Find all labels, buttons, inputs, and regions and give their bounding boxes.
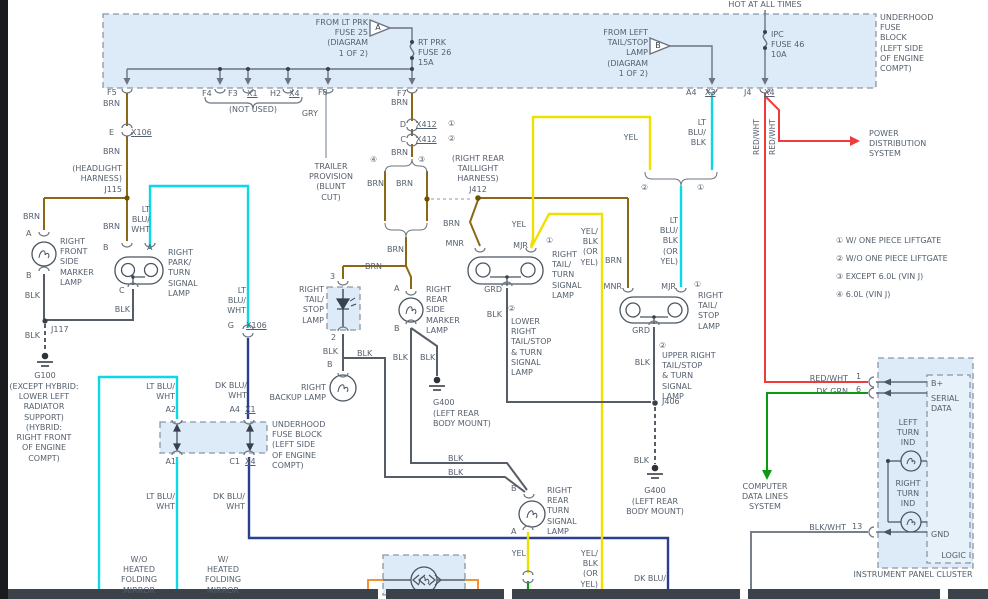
connector-label-x1: X1 xyxy=(247,89,261,99)
ipc-logic-label: LOGIC xyxy=(928,551,966,561)
wire-label-brn: BRN xyxy=(352,179,384,189)
wire-label-blk: BLK xyxy=(470,310,502,320)
page-left-border xyxy=(0,0,8,599)
wire-label-blk: BLK xyxy=(376,353,408,363)
wire-label-brn: BRN xyxy=(372,245,404,255)
note-ref-2: ② xyxy=(641,183,653,193)
underhood-fuse-block2-label: UNDERHOOD FUSE BLOCK (LEFT SIDE OF ENGIN… xyxy=(272,420,334,471)
wire-label-brn: BRN xyxy=(350,262,382,272)
not-used-label: (NOT USED) xyxy=(222,105,284,115)
connector-label-x4: X4 xyxy=(245,457,259,467)
note-1: ① W/ ONE PIECE LIFTGATE xyxy=(836,236,982,246)
ipc-serial-data-label: SERIAL DATA xyxy=(931,394,967,414)
pin-label-mnr: MNR xyxy=(592,282,622,292)
g100-ground xyxy=(37,353,53,366)
rear-turn-lamp-label: RIGHT REAR TURN SIGNAL LAMP xyxy=(547,486,603,537)
instrument-panel-cluster-label: INSTRUMENT PANEL CLUSTER xyxy=(838,570,988,580)
g400-note-label: (LEFT REAR BODY MOUNT) xyxy=(433,409,497,429)
pin-label-1: 1 xyxy=(856,372,866,382)
tail-stop-lamp-label: RIGHT TAIL/ STOP LAMP xyxy=(698,291,744,332)
computer-data-lines-label: COMPUTER DATA LINES SYSTEM xyxy=(736,482,794,513)
hot-at-all-times-label: HOT AT ALL TIMES xyxy=(705,0,825,10)
j412-harness-label: (RIGHT REAR TAILLIGHT HARNESS) J412 xyxy=(440,154,516,195)
pin-label-f8: F8 xyxy=(318,88,332,98)
g400-note-label: (LEFT REAR BODY MOUNT) xyxy=(616,497,694,517)
wire-label-brn: BRN xyxy=(88,147,120,157)
connector-label-x4: X4 xyxy=(289,89,303,99)
wire-label-blk: BLK xyxy=(618,358,650,368)
ipc-fuse-label: IPC FUSE 46 10A xyxy=(771,30,815,61)
pin-label-a: A xyxy=(394,284,404,294)
pin-label-f5: F5 xyxy=(107,88,123,98)
underhood-fuse-block-box xyxy=(103,14,876,88)
pin-label-mnr: MNR xyxy=(434,239,464,249)
pin-label-mjr: MJR xyxy=(498,241,528,251)
pin-label-a1: A1 xyxy=(158,457,176,467)
connector-label-x106: X106 xyxy=(246,321,272,331)
note-ref-2: ② xyxy=(508,304,520,314)
pin-label-6: 6 xyxy=(856,385,866,395)
g400-ground-1 xyxy=(429,377,445,390)
note-ref-2: ② xyxy=(659,341,671,351)
right-tail-stop-led-label: RIGHT TAIL/ STOP LAMP xyxy=(284,285,324,326)
pin-label-a4: A4 xyxy=(224,405,240,415)
pin-label-a: A xyxy=(26,229,36,239)
pin-label-b: B xyxy=(394,324,404,334)
pin-label-f3: F3 xyxy=(228,89,242,99)
wire-label-yel: YEL xyxy=(496,549,526,559)
j115-splice xyxy=(124,195,129,200)
pin-label-g: G xyxy=(222,321,234,331)
pin-label-a2: A2 xyxy=(158,405,176,415)
wire-label-dk-blu: DK BLU/ xyxy=(626,574,666,584)
pin-label-d: D xyxy=(396,120,406,130)
wire-label-red-wht-rotated: RED/WHT xyxy=(752,119,762,155)
from-left-tail-label: FROM LEFT TAIL/STOP LAMP (DIAGRAM 1 OF 2… xyxy=(588,28,648,79)
wiring-diagram-page: HOT AT ALL TIMES FROM LT PRK FUSE 25 (DI… xyxy=(0,0,988,599)
ground-label-g400: G400 xyxy=(433,398,473,408)
from-lt-prk-label: FROM LT PRK FUSE 25 (DIAGRAM 1 OF 2) xyxy=(296,18,368,59)
front-side-marker-bulb xyxy=(32,242,56,266)
pin-label-b: B xyxy=(327,360,337,370)
wire-label-brn: BRN xyxy=(88,222,120,232)
ground-label-g400: G400 xyxy=(630,486,680,496)
upper-right-lamp-label: UPPER RIGHT TAIL/STOP & TURN SIGNAL LAMP xyxy=(662,351,724,402)
pin-label-13: 13 xyxy=(852,522,866,532)
connector-label-x1: X1 xyxy=(245,405,259,415)
pin-label-c: C xyxy=(396,135,406,145)
wire-label-blk: BLK xyxy=(448,454,476,464)
wire-label-dk-blu-wht: DK BLU/ WHT xyxy=(211,381,247,401)
wire-label-blk: BLK xyxy=(448,468,476,478)
pin-label-b: B xyxy=(511,484,521,494)
wire-label-blk: BLK xyxy=(306,347,338,357)
j412-splice-b xyxy=(475,195,481,201)
pin-label-a: A xyxy=(147,243,157,253)
splice-label-j115: J115 xyxy=(92,185,122,195)
wire-label-lt-blu-wht: LT BLU/ WHT xyxy=(139,492,175,512)
power-dist-arrow-icon xyxy=(850,136,860,146)
ind-junction-dot xyxy=(886,459,890,463)
wire-label-brn: BRN xyxy=(590,256,622,266)
wire-label-lt-blu-wht: LT BLU/ WHT xyxy=(139,382,175,402)
tail-turn-lamp-body xyxy=(468,257,543,284)
wire-label-brn: BRN xyxy=(88,99,120,109)
fuse-block-pin-cups xyxy=(122,89,770,109)
wire-label-yel: YEL xyxy=(608,133,638,143)
wire-label-red-wht: RED/WHT xyxy=(802,374,848,384)
note-ref-4: ④ xyxy=(370,155,382,165)
ipc-gnd-label: GND xyxy=(931,530,957,540)
j412-splice-a xyxy=(424,196,429,201)
pin-label-mjr: MJR xyxy=(646,282,676,292)
pin-label-c1: C1 xyxy=(224,457,240,467)
lower-right-lamp-label: LOWER RIGHT TAIL/STOP & TURN SIGNAL LAMP xyxy=(511,317,569,378)
wire-label-dk-blu-wht: DK BLU/ WHT xyxy=(209,492,245,512)
ground-label-g100: G100 xyxy=(20,371,70,381)
g400-ground-2 xyxy=(647,465,663,478)
wire-label-blk: BLK xyxy=(98,305,130,315)
pin-label-b: B xyxy=(103,243,113,253)
ipc-bplus-label: B+ xyxy=(931,379,951,389)
w-heated-mirror-label: W/ HEATED FOLDING MIRROR xyxy=(190,555,256,596)
wire-label-blk: BLK xyxy=(420,353,450,363)
pin-label-c: C xyxy=(119,286,129,296)
connector-label-x106: X106 xyxy=(131,128,157,138)
headlight-harness-label: (HEADLIGHT HARNESS) xyxy=(56,164,122,184)
rear-turn-lamp-bulb xyxy=(519,501,545,527)
blk-wht-wire xyxy=(751,532,868,589)
pin-label-h2: H2 xyxy=(270,89,284,99)
pin-label-f4: F4 xyxy=(202,89,216,99)
left-turn-ind-label: LEFT TURN IND xyxy=(888,418,928,449)
grn-circuit xyxy=(767,393,868,470)
pin-label-grd: GRD xyxy=(618,326,650,336)
ground-symbols xyxy=(37,353,663,478)
computer-data-arrow-icon xyxy=(762,470,772,480)
note-ref-1: ① xyxy=(448,119,460,129)
pin-label-a4: A4 xyxy=(686,88,700,98)
triangle-b-letter: B xyxy=(652,41,664,51)
connector-label-x3: X3 xyxy=(705,88,719,98)
wire-label-brn: BRN xyxy=(8,212,40,222)
note-ref-1: ① xyxy=(697,183,709,193)
note-ref-2: ② xyxy=(448,134,460,144)
rear-side-marker-bulb xyxy=(399,298,423,322)
wire-label-brn: BRN xyxy=(428,219,460,229)
wire-label-lt-blu-blk: LT BLU/ BLK xyxy=(676,118,706,149)
power-distribution-label: POWER DISTRIBUTION SYSTEM xyxy=(869,129,941,160)
wire-label-lt-blu-blk-or: LT BLU/ BLK (OR YEL) xyxy=(646,216,678,267)
note-4: ④ 6.0L (VIN J) xyxy=(836,290,982,300)
j117-splice xyxy=(42,318,47,323)
backup-lamp-bulb xyxy=(330,375,356,401)
pin-label-e: E xyxy=(104,128,114,138)
connector-label-x4b: X4 xyxy=(764,88,778,98)
wire-label-blk: BLK xyxy=(8,291,40,301)
right-turn-ind-label: RIGHT TURN IND xyxy=(888,479,928,510)
underhood-fuse-block-label: UNDERHOOD FUSE BLOCK (LEFT SIDE OF ENGIN… xyxy=(880,13,946,74)
rt-prk-fuse-label: RT PRK FUSE 26 15A xyxy=(418,38,466,69)
pin-label-3: 3 xyxy=(330,272,340,282)
wo-heated-mirror-label: W/O HEATED FOLDING MIRROR xyxy=(106,555,172,596)
backup-lamp-label: RIGHT BACKUP LAMP xyxy=(256,383,326,403)
pin-label-j4: J4 xyxy=(744,88,758,98)
pin-label-a: A xyxy=(511,527,521,537)
note-2: ② W/O ONE PIECE LIFTGATE xyxy=(836,254,982,264)
g100-note-label: (EXCEPT HYBRID: LOWER LEFT RADIATOR SUPP… xyxy=(0,382,88,464)
front-side-marker-lamp-label: RIGHT FRONT SIDE MARKER LAMP xyxy=(60,237,124,288)
splice-label-j406: J406 xyxy=(662,397,692,407)
wire-label-yel: YEL xyxy=(496,220,526,230)
pin-label-b: B xyxy=(26,271,36,281)
wire-label-yel-blk: YEL/ BLK (OR YEL) xyxy=(564,549,598,590)
wire-label-brn: BRN xyxy=(376,98,408,108)
note-3: ③ EXCEPT 6.0L (VIN J) xyxy=(836,272,982,282)
wire-label-blk: BLK xyxy=(617,456,649,466)
note-ref-1: ① xyxy=(694,280,706,290)
splice-label-j117: J117 xyxy=(51,325,81,335)
j406-splice xyxy=(652,400,658,406)
note-ref-1: ① xyxy=(546,236,558,246)
connector-label-x412: X412 xyxy=(416,135,442,145)
wire-label-gry: GRY xyxy=(288,109,318,119)
pin-label-grd: GRD xyxy=(470,285,502,295)
connector-label-x412: X412 xyxy=(416,120,442,130)
wire-label-red-wht-rotated: RED/WHT xyxy=(768,119,778,155)
note-ref-3: ③ xyxy=(418,155,430,165)
wire-label-dk-grn: DK GRN xyxy=(802,387,848,397)
triangle-a-letter: A xyxy=(372,23,384,33)
pin-label-2: 2 xyxy=(331,333,341,343)
wire-label-blk-wht: BLK/WHT xyxy=(800,523,846,533)
wire-label-blk: BLK xyxy=(8,331,40,341)
wire-label-lt-blu-wht: LT BLU/ WHT xyxy=(118,205,150,236)
wire-label-brn: BRN xyxy=(396,179,426,189)
wire-label-lt-blu-wht: LT BLU/ WHT xyxy=(214,286,246,317)
